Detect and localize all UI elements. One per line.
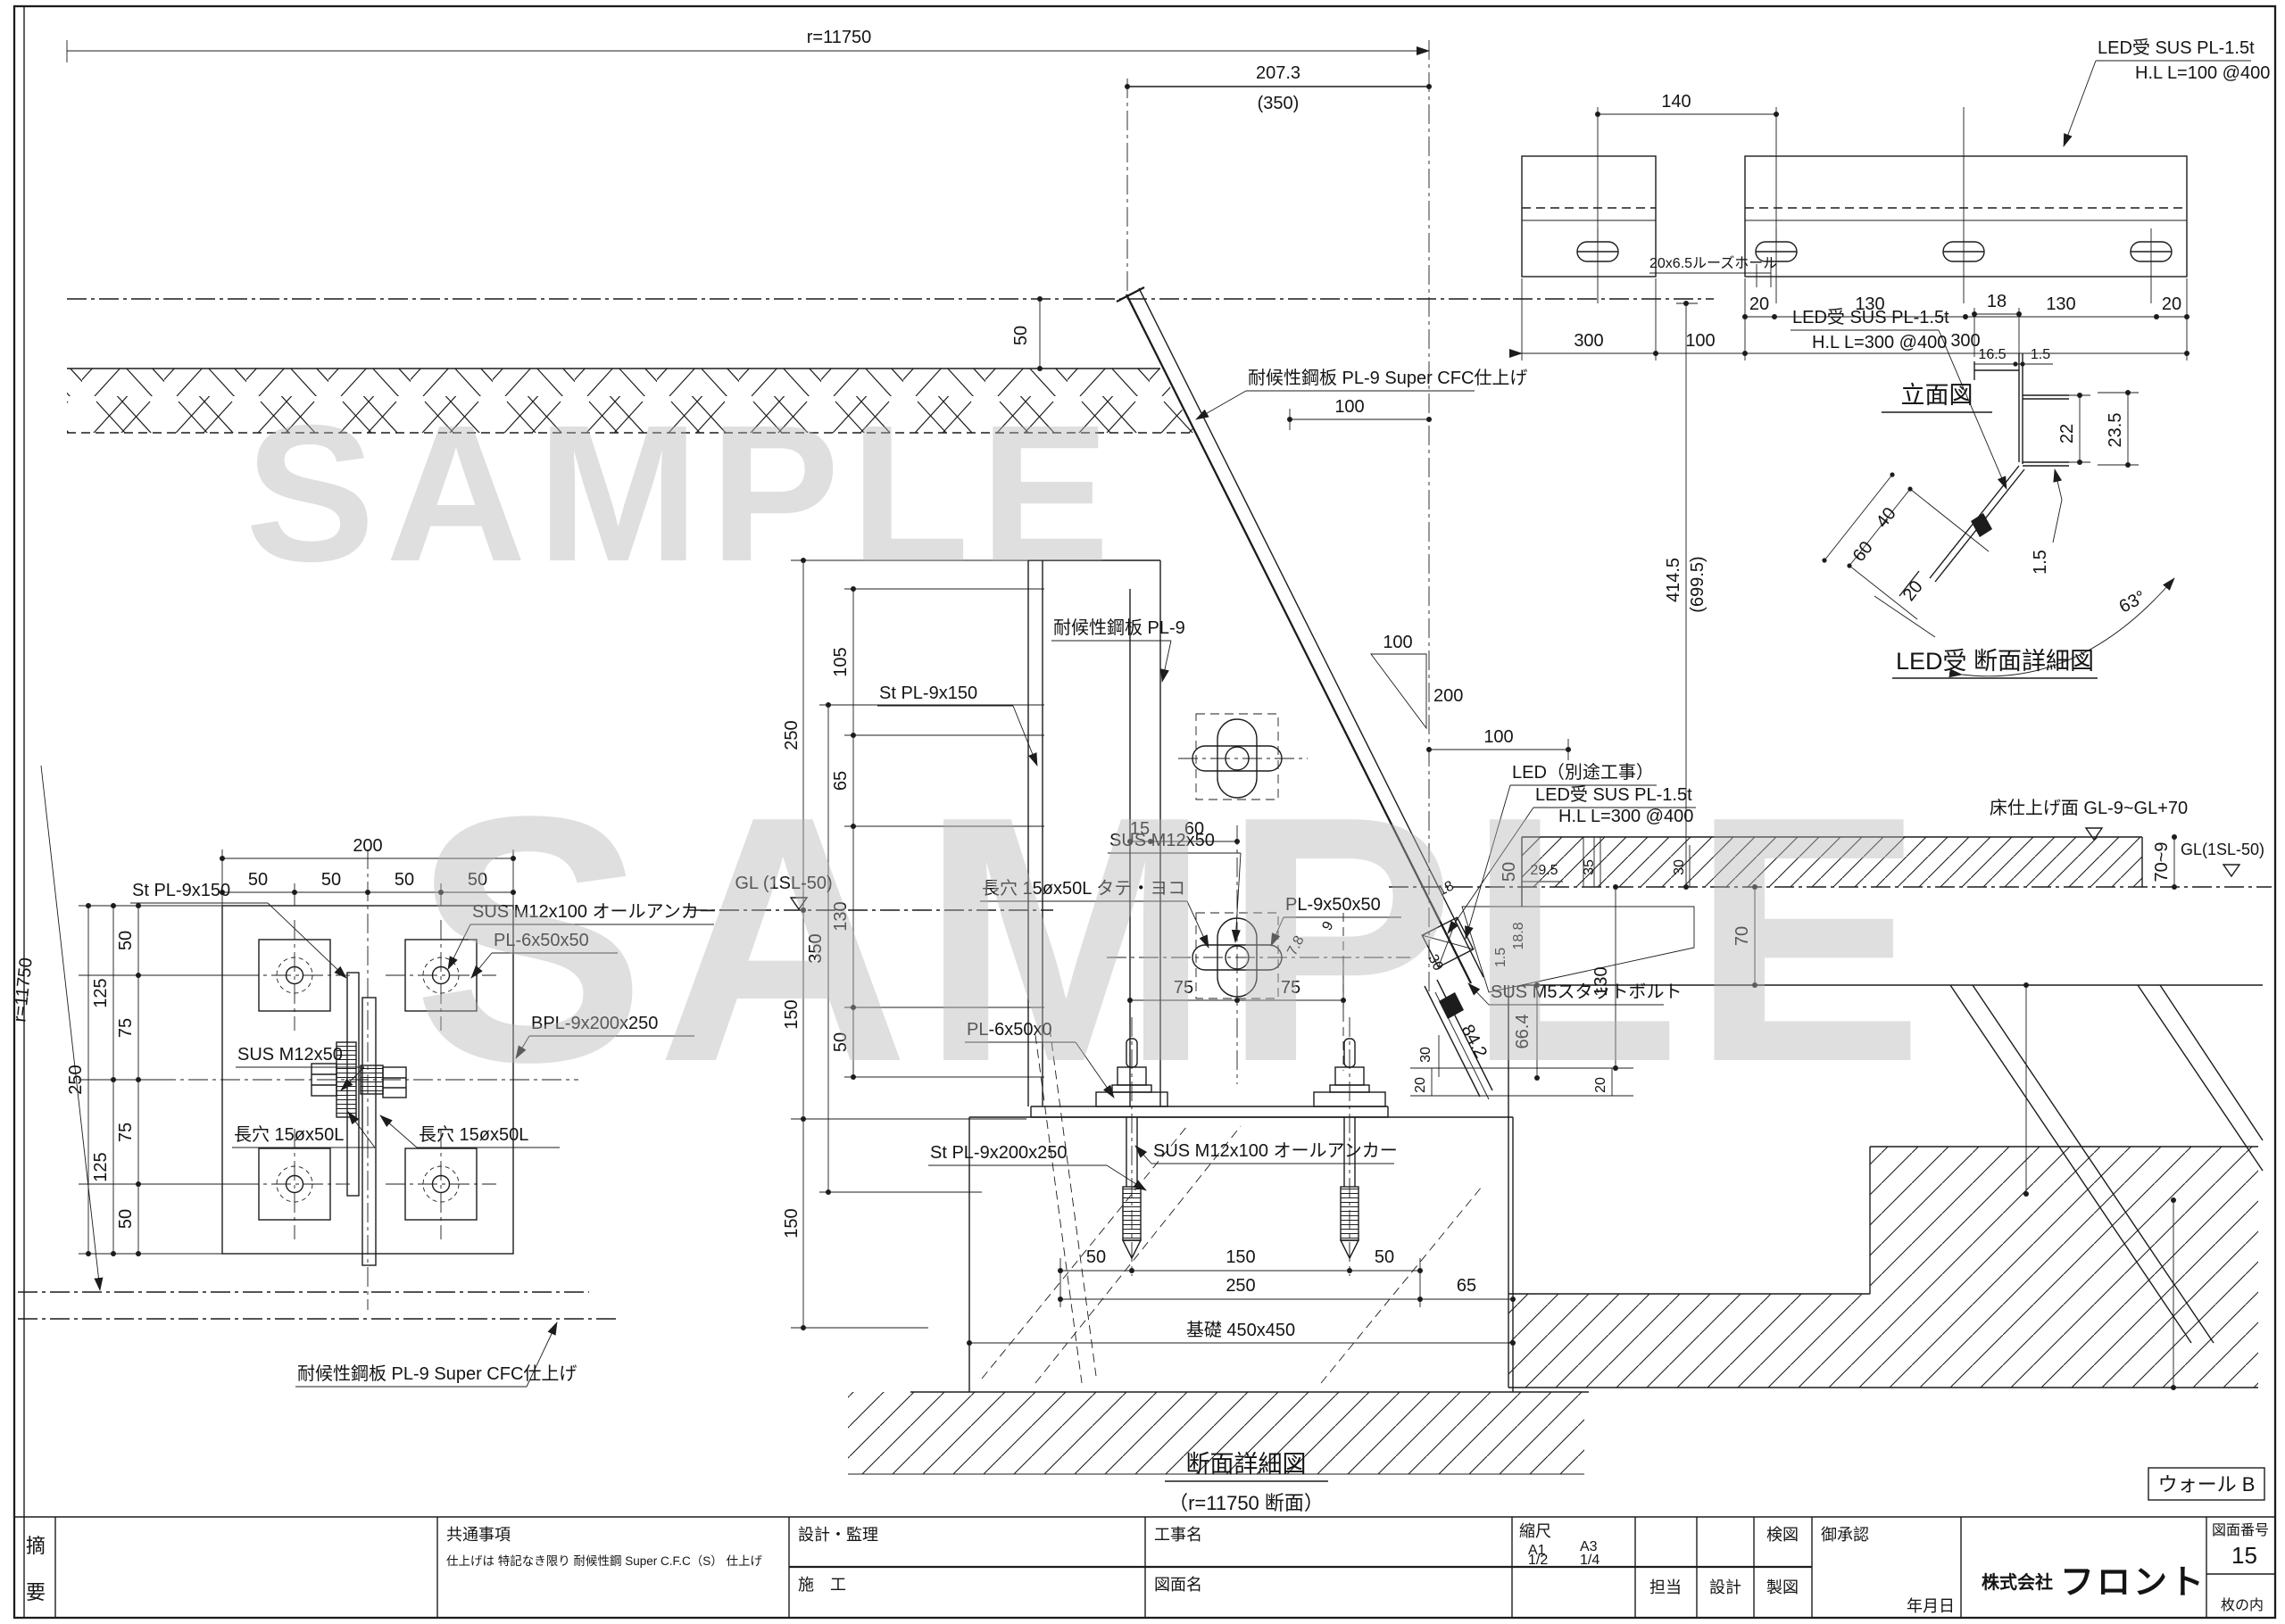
stamp-column-label: 要 (26, 1581, 46, 1603)
dim-label: 250 (66, 1065, 86, 1094)
view-title: 断面詳細図 (1186, 1451, 1307, 1478)
part-label: 耐候性鋼板 PL-9 Super CFC仕上げ (297, 1363, 577, 1384)
approval-label: 御承認 (1821, 1526, 1869, 1544)
part-label: 耐候性鋼板 PL-9 (1053, 617, 1185, 638)
part-label: H.L L=300 @400 (1812, 333, 1947, 352)
dim-label: 23.5 (2106, 413, 2125, 448)
dim-label: 150 (1226, 1247, 1255, 1267)
company-prefix: 株式会社 (1982, 1571, 2053, 1593)
scale-a1-value: 1/2 (1528, 1553, 1548, 1568)
dim-label: 75 (116, 1018, 136, 1038)
dim-label: 50 (116, 931, 136, 950)
dim-label: 100 (1685, 331, 1715, 351)
elevation-view: LED受 SUS PL-1.5t H.L L=100 @400 20x6.5ルー… (1522, 37, 2270, 412)
part-label: 基礎 450x450 (1186, 1320, 1295, 1340)
led-detail-view: LED受 SUS PL-1.5t H.L L=300 @400 18 16.5 … (1791, 292, 2174, 678)
part-label: LED受 SUS PL-1.5t (1792, 307, 1949, 327)
cad-sheet: LED受 SUS PL-1.5t H.L L=100 @400 20x6.5ルー… (0, 0, 2285, 1624)
dim-label: 16.5 (1978, 347, 2006, 362)
part-label: SUS M12x100 オールアンカー (1153, 1141, 1398, 1161)
dim-label: 100 (1334, 397, 1364, 417)
person-in-charge-label: 担当 (1649, 1578, 1682, 1596)
scale-a3-value: 1/4 (1580, 1553, 1599, 1568)
stamp-column-label: 摘 (26, 1535, 46, 1557)
sample-watermark: SAMPLE SAMPLE (245, 385, 1935, 1135)
sheet-count-note: 枚の内 (2221, 1597, 2264, 1613)
part-label: 耐候性鋼板 PL-9 Super CFC仕上げ (1248, 368, 1527, 388)
dim-label: 125 (91, 978, 111, 1007)
drawing-name-label: 図面名 (1154, 1576, 1202, 1594)
dim-label: (699.5) (1688, 556, 1708, 612)
designer-label: 設計 (1709, 1578, 1741, 1596)
part-label: St PL-9x200x250 (930, 1143, 1067, 1163)
dim-label: 50 (1011, 326, 1031, 345)
dim-label: 300 (1574, 331, 1603, 351)
dim-label: 140 (1661, 92, 1691, 112)
drawing-number-label: 図面番号 (2212, 1522, 2269, 1538)
part-label: H.L L=100 @400 (2135, 63, 2270, 83)
part-label: LED受 SUS PL-1.5t (2098, 37, 2255, 58)
dim-label: r=11750 (807, 28, 871, 47)
dim-label: 70~9 (2152, 841, 2172, 882)
level-label: 床仕上げ面 GL-9~GL+70 (1990, 798, 2188, 818)
scale-label: 縮尺 (1519, 1522, 1551, 1540)
svg-text:SAMPLE: SAMPLE (245, 385, 1120, 602)
dim-label: 207.3 (1256, 63, 1300, 83)
part-label: St PL-9x150 (879, 684, 977, 703)
checker-label: 検図 (1766, 1526, 1799, 1544)
dim-label: 65 (1457, 1276, 1476, 1296)
dim-label: 40 (1873, 504, 1900, 532)
title-block: 摘 要 共通事項 仕上げは 特記なき限り 耐候性鋼 Super C.F.C（S）… (14, 1517, 2275, 1618)
dim-label: 50 (395, 870, 414, 890)
part-label: St PL-9x150 (132, 881, 230, 900)
dim-label: 414.5 (1664, 558, 1683, 602)
dim-label: 150 (782, 1208, 802, 1238)
dim-label: 20 (2162, 294, 2181, 314)
wall-tag: ウォール B (2148, 1468, 2264, 1500)
drafter-label: 製図 (1766, 1578, 1799, 1596)
project-name-label: 工事名 (1154, 1526, 1202, 1544)
dim-label: 300 (1950, 331, 1980, 351)
dim-label: 60 (1849, 538, 1877, 566)
part-label: SUS M12x50 (237, 1045, 343, 1065)
level-label: GL(1SL-50) (2181, 841, 2264, 858)
construction-label: 施 工 (798, 1576, 846, 1594)
dim-label: 50 (1086, 1247, 1106, 1267)
view-subtitle: （r=11750 断面） (1168, 1492, 1324, 1514)
dim-label: 130 (2046, 294, 2075, 314)
dim-label: 50 (248, 870, 268, 890)
dim-label: 63° (2116, 587, 2149, 617)
dim-label: 75 (116, 1123, 136, 1142)
dim-label: 125 (91, 1152, 111, 1181)
dim-label: 50 (321, 870, 341, 890)
dim-label: 20 (1899, 577, 1927, 605)
svg-text:SAMPLE: SAMPLE (412, 744, 1934, 1135)
dim-label: 18 (1987, 292, 2007, 311)
notes-title: 共通事項 (446, 1526, 511, 1544)
drawing-number: 15 (2231, 1542, 2257, 1569)
dim-label: 200 (353, 836, 382, 856)
dim-label: 22 (2057, 424, 2077, 443)
design-supervision-label: 設計・監理 (798, 1526, 878, 1544)
dim-label: (350) (1258, 94, 1300, 113)
dim-label: 1.5 (2031, 550, 2050, 575)
wall-tag-label: ウォール B (2158, 1473, 2256, 1496)
dim-label: 250 (1226, 1276, 1255, 1296)
drawing-canvas: LED受 SUS PL-1.5t H.L L=100 @400 20x6.5ルー… (0, 0, 2285, 1624)
company-name: フロント (2060, 1564, 2206, 1602)
dim-label: 100 (1383, 633, 1412, 652)
view-title: LED受 断面詳細図 (1896, 648, 2094, 675)
notes-body: 仕上げは 特記なき限り 耐候性鋼 Super C.F.C（S） 仕上げ (446, 1554, 763, 1568)
dim-label: 105 (831, 647, 851, 676)
dim-label: 50 (116, 1209, 136, 1229)
part-label: 20x6.5ルーズホール (1649, 255, 1777, 271)
part-label: 長穴 15øx50L (234, 1124, 344, 1145)
dim-label: 20 (1749, 294, 1769, 314)
dim-label: 1.5 (2031, 347, 2050, 362)
dim-label: 200 (1433, 686, 1463, 706)
dim-label: 50 (1375, 1247, 1394, 1267)
date-label: 年月日 (1907, 1597, 1955, 1615)
